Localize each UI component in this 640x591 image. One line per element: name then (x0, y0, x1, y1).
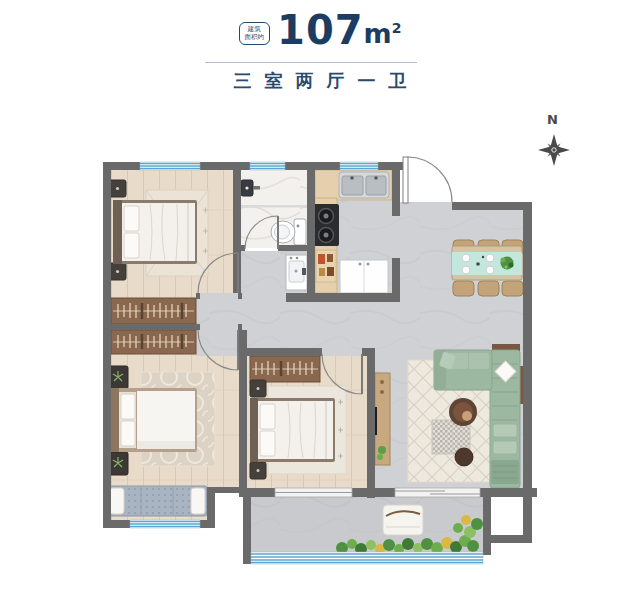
dining-table (452, 246, 522, 280)
toilet (271, 219, 306, 245)
compass-rose (538, 134, 570, 166)
kitchen-sink (339, 172, 389, 198)
balcony-sliding-door (395, 488, 480, 497)
pillow (110, 488, 124, 514)
stool (455, 448, 473, 466)
window-master-bay (130, 520, 200, 528)
window-balcony (251, 552, 483, 564)
lounge-chair (383, 505, 423, 535)
bay-window-bench (109, 486, 207, 516)
window-bathroom (250, 162, 285, 170)
floor-plan-page: 建筑 面积约 107 m2 三室两厅一卫 N (0, 0, 640, 591)
floor-plan (0, 0, 640, 591)
dining-chairs-bottom (453, 281, 523, 296)
window-bedroom-topleft (140, 162, 200, 170)
vanity-sink (286, 255, 307, 290)
pillow (191, 488, 205, 514)
wardrobe (111, 330, 196, 354)
plant (378, 446, 386, 454)
wardrobe (111, 298, 196, 324)
door-entry (403, 157, 452, 203)
double-bed (111, 388, 197, 452)
wardrobe (250, 356, 320, 382)
window-kitchen (340, 162, 378, 170)
hallway-floor (196, 293, 400, 356)
coffee-table (449, 398, 477, 426)
balcony-floor (251, 497, 483, 560)
bedroom-top-left (109, 180, 208, 324)
dining-area (452, 240, 523, 296)
refrigerator (340, 260, 388, 293)
double-bed (250, 398, 335, 462)
window-bedroom-middle (275, 488, 352, 497)
table-plant (501, 257, 514, 270)
stove (313, 204, 339, 246)
shower-glass (241, 205, 307, 208)
condiment-shelf (316, 250, 336, 282)
double-bed (113, 200, 197, 264)
